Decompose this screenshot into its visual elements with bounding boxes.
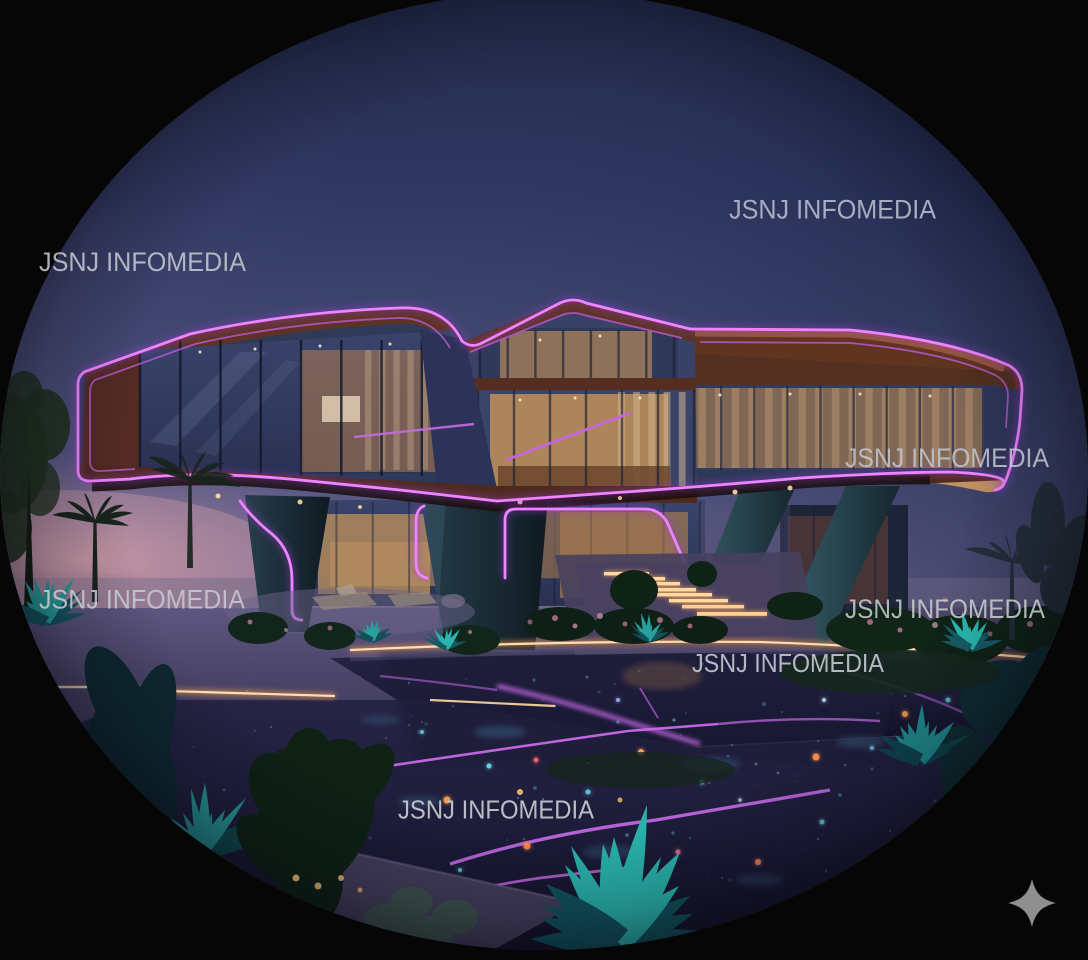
svg-text:JSNJ INFOMEDIA: JSNJ INFOMEDIA: [692, 648, 885, 678]
svg-text:JSNJ INFOMEDIA: JSNJ INFOMEDIA: [39, 585, 245, 615]
svg-text:JSNJ INFOMEDIA: JSNJ INFOMEDIA: [729, 195, 936, 225]
svg-text:JSNJ INFOMEDIA: JSNJ INFOMEDIA: [39, 247, 246, 277]
svg-text:JSNJ INFOMEDIA: JSNJ INFOMEDIA: [398, 795, 595, 825]
svg-text:JSNJ INFOMEDIA: JSNJ INFOMEDIA: [845, 443, 1049, 473]
svg-text:JSNJ INFOMEDIA: JSNJ INFOMEDIA: [845, 594, 1045, 624]
